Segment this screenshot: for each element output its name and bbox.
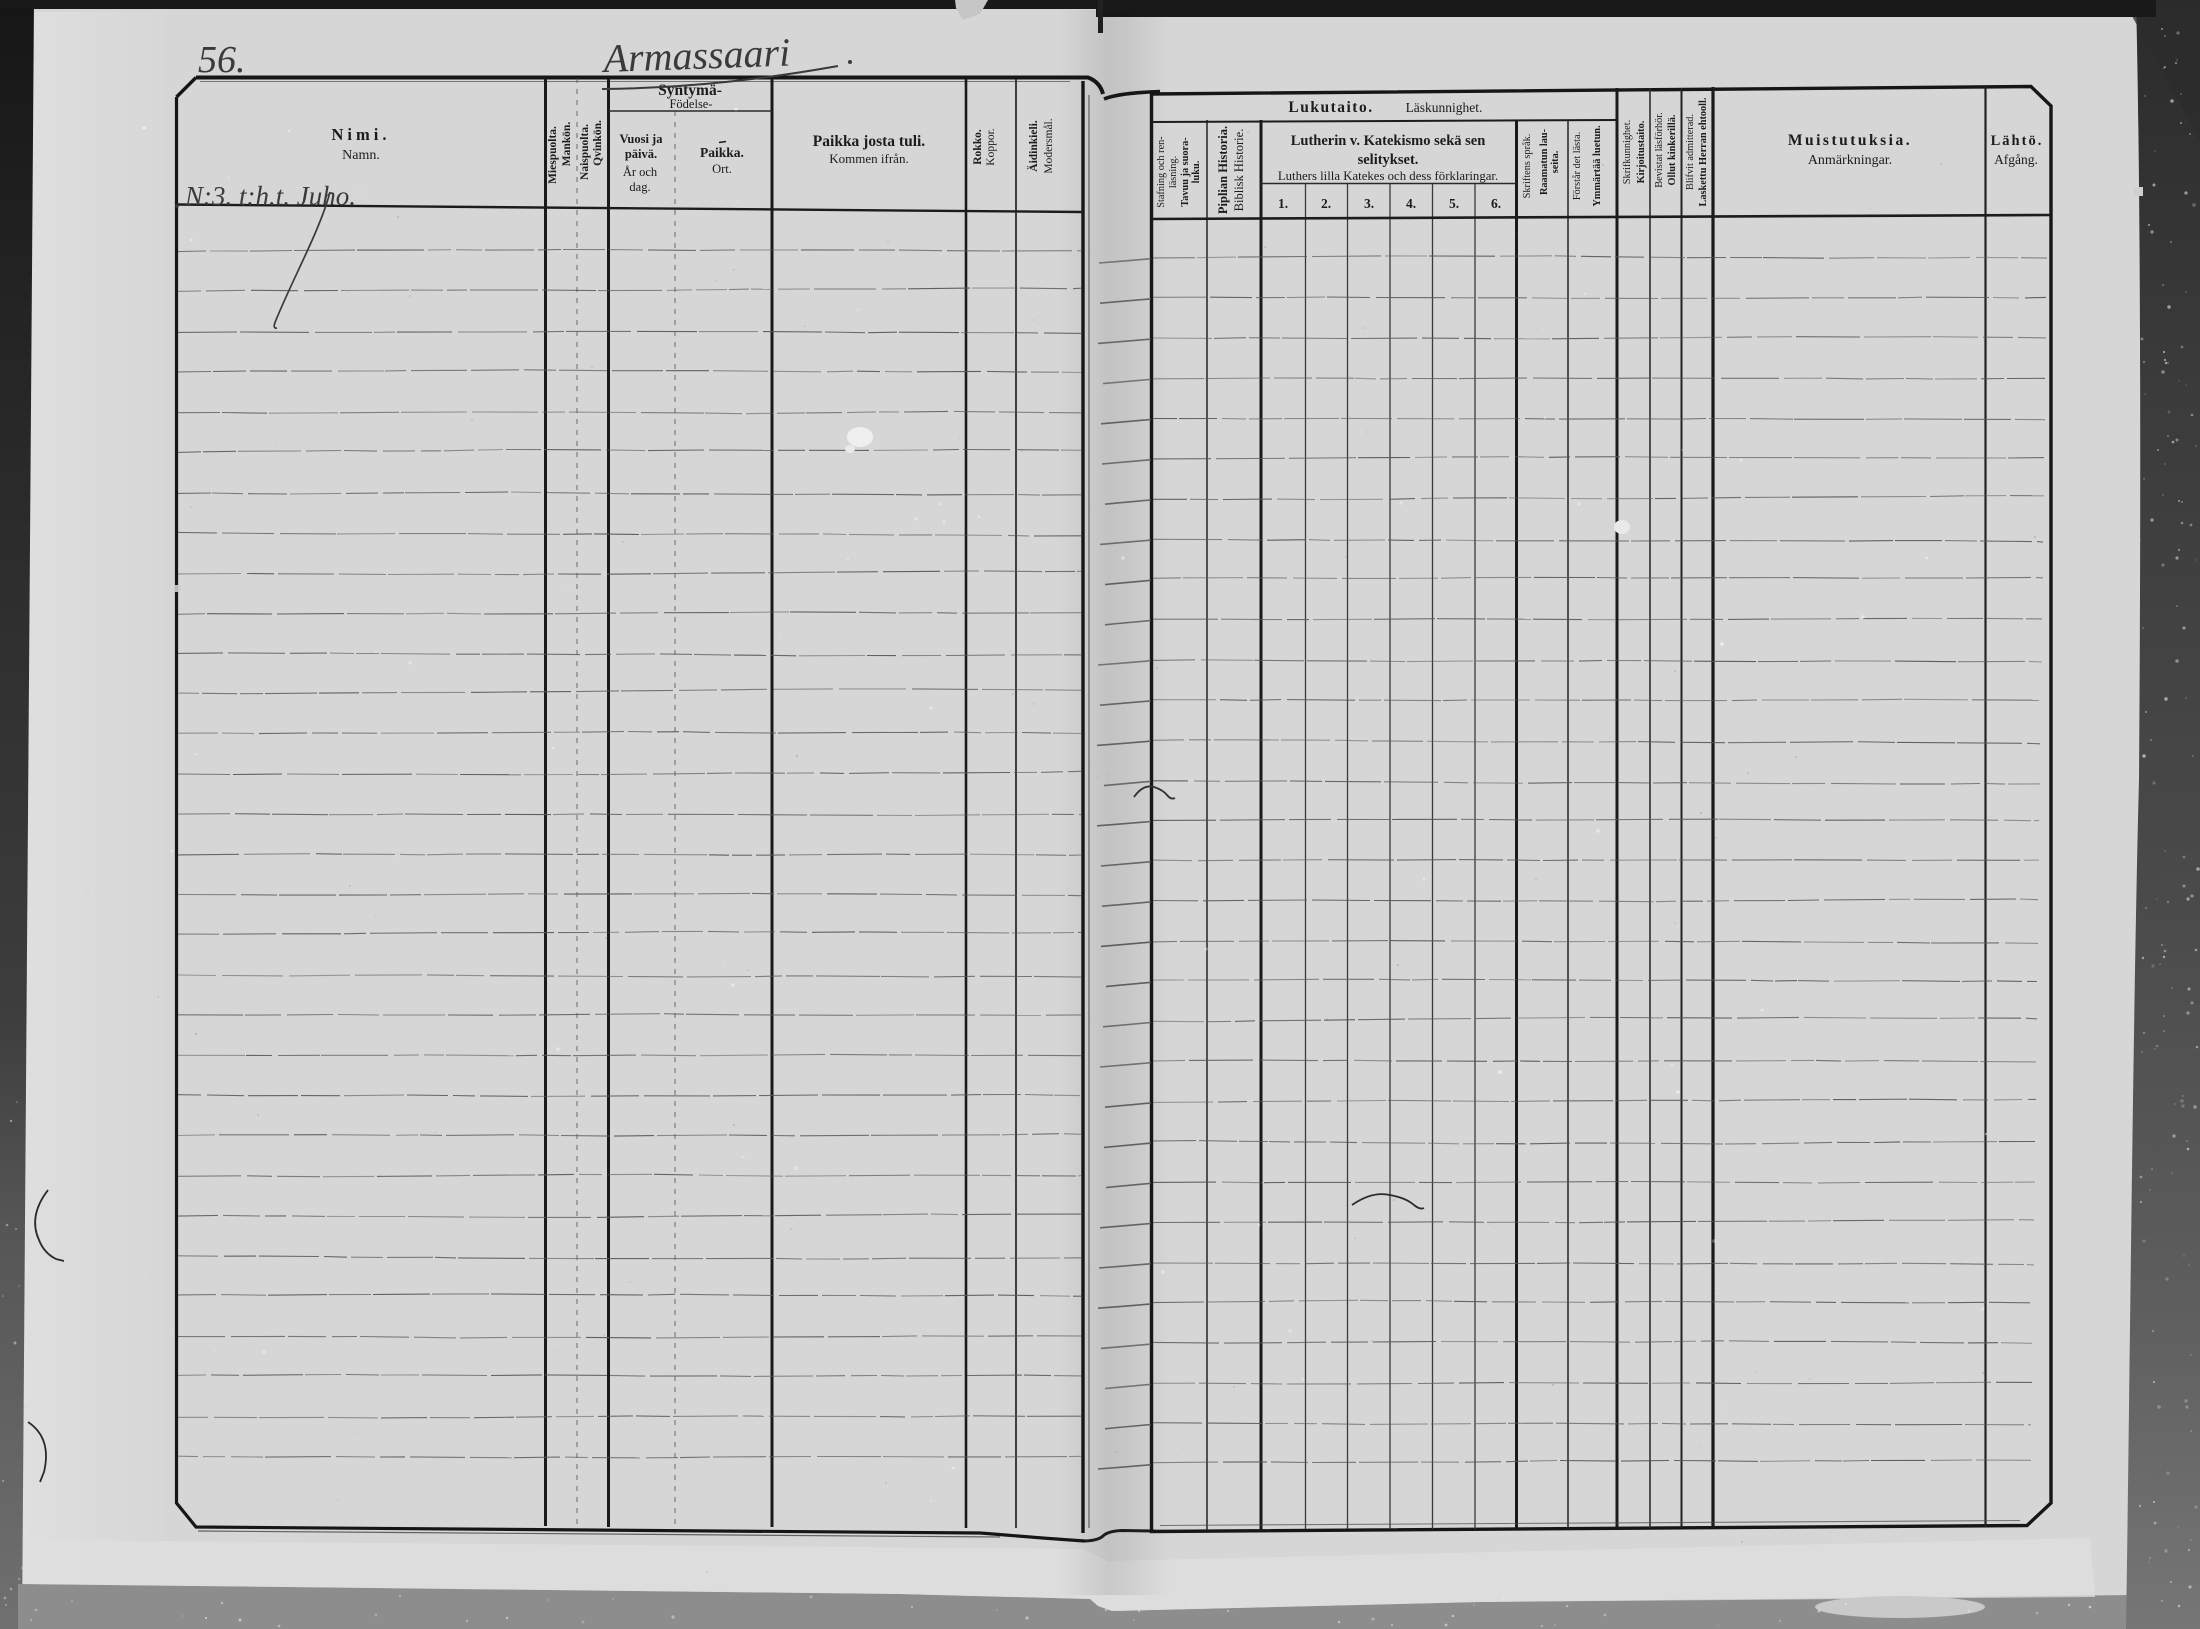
svg-text:Lähtö.: Lähtö.: [1991, 133, 2044, 149]
svg-text:Laskettu Herran ehtooll.: Laskettu Herran ehtooll.: [1698, 97, 1709, 206]
svg-text:Läskunnighet.: Läskunnighet.: [1406, 100, 1483, 115]
svg-text:Skrifkunnighet.: Skrifkunnighet.: [1622, 120, 1633, 184]
svg-text:Namn.: Namn.: [342, 148, 380, 163]
svg-text:Lukutaito.: Lukutaito.: [1288, 99, 1373, 116]
svg-text:Tavuu ja suora-: Tavuu ja suora-: [1180, 137, 1191, 207]
svg-text:Vuosi ja: Vuosi ja: [620, 132, 664, 146]
svg-text:5.: 5.: [1449, 196, 1459, 211]
svg-text:6.: 6.: [1491, 196, 1501, 211]
svg-text:Armassaari: Armassaari: [600, 30, 791, 82]
svg-text:Modersmål.: Modersmål.: [1042, 118, 1055, 173]
svg-text:dag.: dag.: [629, 180, 650, 194]
svg-text:Anmärkningar.: Anmärkningar.: [1808, 153, 1892, 168]
svg-text:Luthers lilla Katekes och dess: Luthers lilla Katekes och dess förklarin…: [1278, 169, 1498, 183]
svg-text:Ort.: Ort.: [712, 162, 732, 176]
svg-text:Äidinkieli.: Äidinkieli.: [1026, 120, 1040, 172]
svg-text:Koppor.: Koppor.: [985, 128, 997, 166]
svg-text:Skriftens språk.: Skriftens språk.: [1522, 134, 1533, 199]
svg-text:selitykset.: selitykset.: [1358, 152, 1419, 168]
svg-text:Paikka.: Paikka.: [700, 145, 744, 160]
svg-text:luku.: luku.: [1191, 160, 1202, 183]
svg-text:Paikka josta tuli.: Paikka josta tuli.: [813, 133, 926, 150]
svg-text:Piplian Historia.: Piplian Historia.: [1216, 126, 1230, 214]
svg-text:Miespuolta.: Miespuolta.: [547, 126, 559, 184]
svg-text:seita.: seita.: [1550, 150, 1561, 173]
svg-text:Kommen ifrån.: Kommen ifrån.: [829, 151, 908, 166]
svg-text:Kirjoitustaito.: Kirjoitustaito.: [1636, 120, 1647, 183]
svg-text:Ollut kinkerillä.: Ollut kinkerillä.: [1667, 114, 1678, 185]
svg-text:Stafning och ren-: Stafning och ren-: [1156, 136, 1167, 208]
svg-text:Mankön.: Mankön.: [561, 122, 573, 167]
svg-text:Födelse-: Födelse-: [669, 97, 712, 111]
svg-text:Raamatun lau-: Raamatun lau-: [1539, 128, 1550, 195]
svg-text:N:3. t:h.t. Juho.: N:3. t:h.t. Juho.: [184, 181, 356, 211]
svg-text:läsning.: läsning.: [1168, 156, 1179, 188]
svg-text:3.: 3.: [1364, 196, 1374, 211]
svg-text:Afgång.: Afgång.: [1994, 152, 2038, 167]
svg-text:Rokko.: Rokko.: [972, 129, 984, 165]
svg-text:Muistutuksia.: Muistutuksia.: [1788, 132, 1912, 149]
svg-text:Biblisk Historie.: Biblisk Historie.: [1232, 129, 1246, 212]
svg-text:Nimi.: Nimi.: [332, 125, 391, 144]
svg-text:Ymmärtää luetun.: Ymmärtää luetun.: [1592, 125, 1603, 207]
svg-text:Bevistat läsförhör.: Bevistat läsförhör.: [1654, 112, 1665, 188]
svg-text:Naispuolta.: Naispuolta.: [579, 124, 591, 180]
svg-text:4.: 4.: [1406, 196, 1416, 211]
svg-text:Qvinkön.: Qvinkön.: [592, 120, 604, 166]
svg-text:År och: År och: [623, 165, 658, 179]
svg-text:Lutherin v. Katekismo sekä sen: Lutherin v. Katekismo sekä sen: [1291, 133, 1486, 149]
svg-text:56.: 56.: [198, 39, 246, 81]
svg-text:1.: 1.: [1278, 196, 1288, 211]
svg-text:Förstår det lästa.: Förstår det lästa.: [1572, 132, 1583, 200]
svg-text:2.: 2.: [1321, 196, 1331, 211]
svg-text:Blifvit admitterad.: Blifvit admitterad.: [1685, 114, 1696, 190]
svg-text:päivä.: päivä.: [625, 147, 657, 161]
